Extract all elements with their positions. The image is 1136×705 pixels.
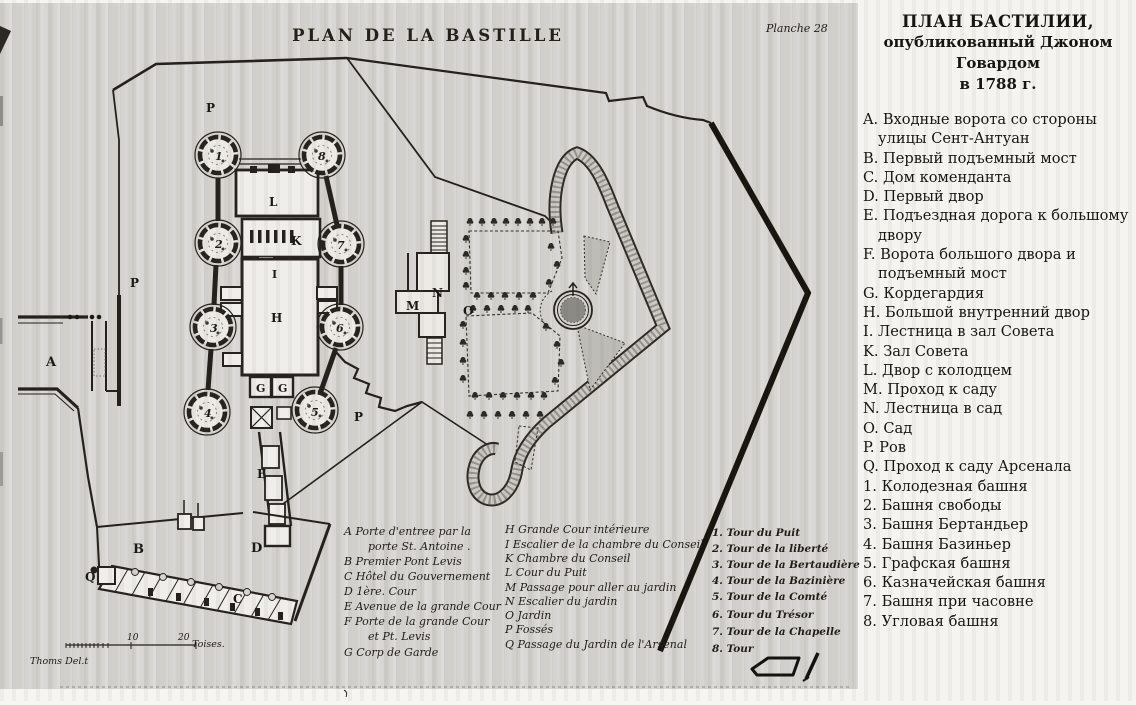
label-a: A [45,355,57,370]
bastille-map-plate: PLAN DE LA BASTILLE Planche 28 [0,0,860,701]
legend-fr-line: 6. Tour du Trésor [712,609,815,621]
legend-entry: E. Подъездная дорога к большому двору [863,206,1134,245]
legend-fr-line: F Porte de la grande Cour [343,615,490,628]
label-p-bottom: P [354,410,363,424]
legend-fr-line: Q Passage du Jardin de l'Arsenal [505,638,687,651]
legend-fr-line: B Premier Pont Levis [343,555,462,568]
legend-entry-key: G. [863,285,879,302]
legend-fr-line: E Avenue de la grande Cour [343,600,502,613]
legend-fr-line: et Pt. Levis [368,630,431,643]
scan-smudge [0,96,3,126]
label-g-left: G [256,382,265,395]
legend-entry-key: 2. [863,497,877,514]
label-k: K [291,234,302,248]
label-l: L [269,195,278,209]
tower-7-number: 7 [337,239,345,252]
legend-fr-line: N Escalier du jardin [504,595,617,608]
legend-entry: H. Большой внутренний двор [863,303,1134,322]
scale-unit: Toises. [192,639,225,650]
legend-entry: 3. Башня Бертандьер [863,515,1134,534]
legend-entry-key: 8. [863,613,877,630]
council-chamber-k [242,219,320,257]
legend-fr-line: P Fossés [504,623,553,636]
legend-entry-text: Казначейская башня [882,574,1046,591]
scale-tick-20: 20 [177,633,190,643]
caption-title-line: ПЛАН БАСТИЛИИ, [860,11,1136,32]
legend-entry-text: Угловая башня [882,613,999,630]
caption-title-line: опубликованный Джоном Говардом [860,32,1136,74]
label-g-right: G [278,382,287,395]
bastille-map: PLAN DE LA BASTILLE Planche 28 [0,0,860,701]
legend-entry-text: Двор с колодцем [882,362,1012,379]
label-d: D [251,541,262,556]
legend-entry-key: N. [863,400,879,417]
legend-fr-line: O Jardin [505,609,551,622]
legend-entry-text: Башня Бертандьер [882,516,1029,533]
legend-entry: I. Лестница в зал Совета [863,322,1134,341]
legend-entry-key: C. [863,169,878,186]
label-n: N [432,286,443,300]
legend-fr-line: 2. Tour de la liberté [711,543,829,555]
court-l-block [236,170,318,216]
legend-fr-line: A Porte d'entree par la [343,525,471,538]
label-c: C [233,592,243,606]
legend-entry-text: Ров [879,439,906,456]
label-h: H [271,311,282,325]
legend-entry-text: Колодезная башня [882,478,1028,495]
legend-entry-key: I. [863,323,873,340]
legend-entry-key: M. [863,381,883,398]
legend-fr-line: M Passage pour aller au jardin [504,581,677,594]
legend-entry-text: Первый двор [883,188,983,205]
legend-entry-text: Кордегардия [883,285,984,302]
legend-entry-text: Ворота большого двора и подъемный мост [878,246,1076,282]
legend-entry-key: P. [863,439,875,456]
legend-entry: B. Первый подъемный мост [863,149,1134,168]
legend-fr-line: D 1ère. Cour [343,585,417,598]
tower-8-number: 8 [318,150,326,163]
legend-entry: 1. Колодезная башня [863,477,1134,496]
plate-title: PLAN DE LA BASTILLE [292,26,564,45]
legend-entry: O. Сад [863,419,1134,438]
legend-entry: D. Первый двор [863,187,1134,206]
legend-entry: N. Лестница в сад [863,399,1134,418]
legend-entry-key: 6. [863,574,877,591]
russian-caption-column: ПЛАН БАСТИЛИИ, опубликованный Джоном Гов… [860,0,1136,701]
legend-fr-line: 5. Tour de la Comté [712,591,827,603]
legend-entry: P. Ров [863,438,1134,457]
legend-fr-line: L Cour du Puit [504,566,587,579]
label-b: B [133,542,144,557]
label-p-top: P [206,101,215,115]
legend-entry-key: F. [863,246,876,263]
legend-entry: C. Дом коменданта [863,168,1134,187]
label-m: M [406,299,419,313]
legend-entry: K. Зал Совета [863,342,1134,361]
scan-smudge [0,452,3,486]
label-e: E [257,467,266,481]
legend-entry-key: 3. [863,516,877,533]
label-q: Q [85,570,95,584]
legend-entry-key: E. [863,207,878,224]
legend-entry: Q. Проход к саду Арсенала [863,457,1134,476]
legend-entry-text: Лестница в зал Совета [878,323,1054,340]
scan-smudge [0,318,3,344]
legend-entry-text: Проход к саду Арсенала [884,458,1072,475]
legend-entry: 4. Башня Базиньер [863,535,1134,554]
legend-entry-key: D. [863,188,879,205]
legend-entry: L. Двор с колодцем [863,361,1134,380]
legend-entry: 5. Графская башня [863,554,1134,573]
legend-entry-key: O. [863,420,879,437]
legend-entry: 7. Башня при часовне [863,592,1134,611]
legend-entry-text: Большой внутренний двор [885,304,1090,321]
scan-artifact-squiggle [344,690,347,697]
legend-entry-text: Башня при часовне [882,593,1034,610]
legend-entry: 2. Башня свободы [863,496,1134,515]
legend-entry: M. Проход к саду [863,380,1134,399]
caption-title: ПЛАН БАСТИЛИИ, опубликованный Джоном Гов… [860,11,1136,95]
legend-fr-line: 1. Tour du Puit [712,527,800,539]
legend-fr-line: 8. Tour [712,643,755,655]
legend-fr-line: 3. Tour de la Bertaudière [712,559,860,571]
tower-2-number: 2 [214,238,223,251]
engraver-signature: Thoms Del.t [30,656,88,667]
legend-entry-key: L. [863,362,877,379]
legend-entry: 6. Казначейская башня [863,573,1134,592]
legend-fr-line: 7. Tour de la Chapelle [712,626,841,638]
legend-entry-text: Графская башня [882,555,1011,572]
legend-entry-key: H. [863,304,880,321]
legend-entry-text: Дом коменданта [883,169,1011,186]
label-p-left: P [130,276,139,290]
legend-entry-text: Лестница в сад [884,400,1002,417]
legend-entry-key: 4. [863,536,877,553]
caption-title-line: в 1788 г. [860,74,1136,95]
legend-entry-text: Проход к саду [887,381,997,398]
tower-1-number: 1 [215,150,223,163]
tower-4-number: 4 [204,407,212,420]
scale-tick-10: 10 [127,633,139,643]
legend-fr-line: I Escalier de la chambre du Conseil [504,538,704,551]
legend-fr-line: 4. Tour de la Bazinière [712,575,846,587]
caption-legend-list: A. Входные ворота со стороны улицы Сент-… [863,110,1134,631]
book-page: PLAN DE LA BASTILLE Planche 28 [0,0,1136,701]
tower-3-number: 3 [210,322,218,335]
legend-entry-key: Q. [863,458,879,475]
legend-entry: 8. Угловая башня [863,612,1134,631]
legend-entry-key: A. [863,111,878,128]
legend-entry-key: K. [863,343,879,360]
legend-entry: F. Ворота большого двора и подъемный мос… [863,245,1134,284]
legend-entry-key: B. [863,150,878,167]
legend-entry: G. Кордегардия [863,284,1134,303]
plate-number: Planche 28 [765,22,828,35]
legend-entry-text: Подъездная дорога к большому двору [878,207,1128,243]
label-i: I [272,268,277,281]
legend-entry-text: Башня Базиньер [882,536,1011,553]
legend-fr-line: C Hôtel du Gouvernement [344,570,491,583]
label-o: O [463,304,473,318]
legend-entry-key: 5. [863,555,877,572]
legend-fr-line: porte St. Antoine . [368,540,470,553]
legend-entry-text: Сад [883,420,912,437]
legend-fr-line: K Chambre du Conseil [504,552,631,565]
tower-6-number: 6 [336,322,344,335]
legend-fr-line: G Corp de Garde [344,646,439,659]
legend-entry-text: Башня свободы [882,497,1002,514]
legend-entry-text: Первый подъемный мост [883,150,1077,167]
legend-entry-key: 1. [863,478,877,495]
legend-entry-key: 7. [863,593,877,610]
tower-5-number: 5 [311,406,319,419]
legend-fr-line: H Grande Cour intérieure [504,523,650,536]
legend-entry-text: Входные ворота со стороны улицы Сент-Ант… [878,111,1097,147]
legend-entry-text: Зал Совета [883,343,968,360]
legend-entry: A. Входные ворота со стороны улицы Сент-… [863,110,1134,149]
